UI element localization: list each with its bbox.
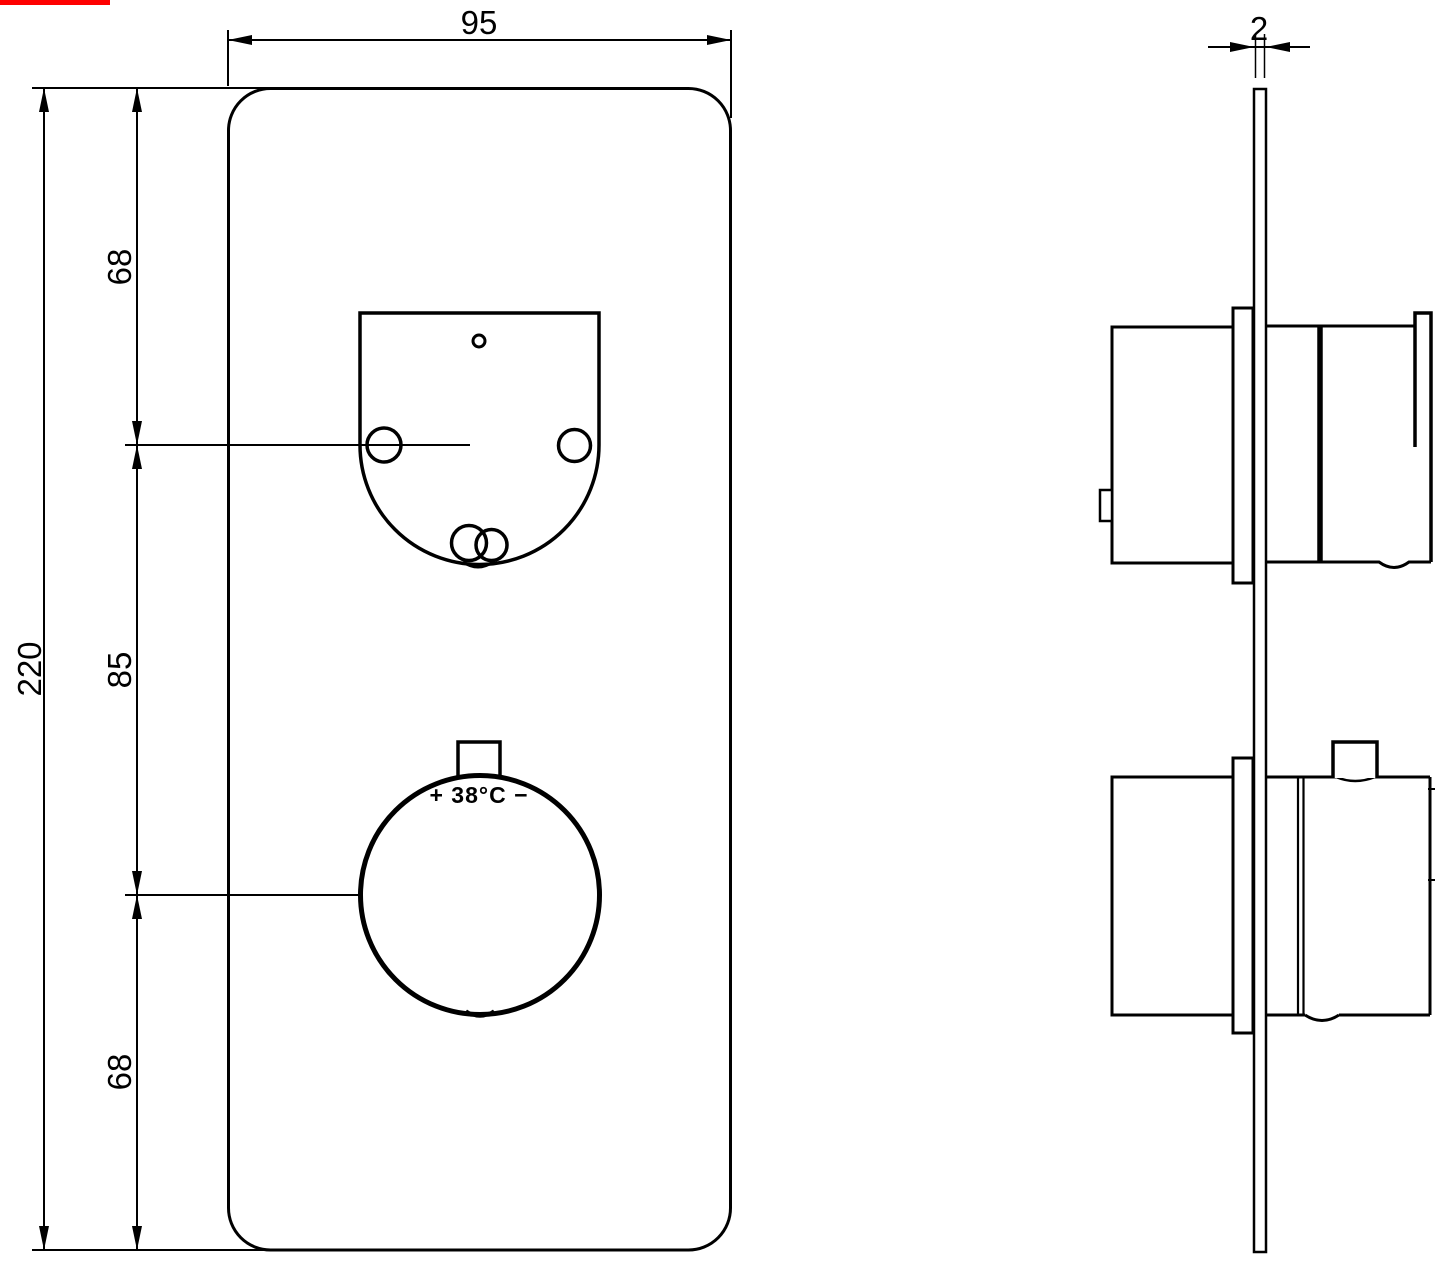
arrowhead bbox=[132, 895, 142, 919]
dim-text-68-bottom: 68 bbox=[101, 1054, 138, 1091]
lower-flange bbox=[1233, 758, 1253, 1033]
temperature-label: + 38°C − bbox=[429, 782, 528, 808]
upper-body-behind-wall bbox=[1112, 327, 1233, 563]
upper-knob-bottom-edge bbox=[1266, 562, 1431, 568]
arrowhead bbox=[132, 421, 142, 445]
knob-outline bbox=[361, 776, 600, 1015]
dim-text-85: 85 bbox=[101, 652, 138, 689]
side-view bbox=[1100, 34, 1435, 1252]
dim-text-68-top: 68 bbox=[101, 249, 138, 286]
dim-text-220: 220 bbox=[11, 641, 48, 696]
upper-body-nub bbox=[1100, 490, 1112, 521]
lower-knob-outline bbox=[1266, 777, 1430, 1015]
red-accent-mark bbox=[0, 0, 110, 5]
technical-drawing: + 38°C − 95 220 68 85 68 bbox=[0, 0, 1445, 1269]
upper-flange bbox=[1233, 308, 1253, 583]
dim-text-95: 95 bbox=[461, 4, 498, 41]
lower-assembly-side bbox=[1112, 742, 1435, 1033]
arrowhead bbox=[132, 445, 142, 469]
upper-knob-face-bar bbox=[1415, 313, 1431, 562]
arrowhead bbox=[132, 871, 142, 895]
plate-front-outline bbox=[229, 89, 731, 1251]
arrowhead bbox=[707, 35, 731, 45]
arrowhead bbox=[132, 88, 142, 112]
lower-body-behind-wall bbox=[1112, 777, 1233, 1015]
arrowhead bbox=[1266, 42, 1290, 52]
arrowhead bbox=[39, 1226, 49, 1250]
dim-text-2: 2 bbox=[1250, 10, 1268, 47]
lower-knob-bottom-arc bbox=[1305, 1015, 1339, 1021]
arrowhead bbox=[228, 35, 252, 45]
arrowhead bbox=[132, 1226, 142, 1250]
arrowhead bbox=[39, 88, 49, 112]
drawing-canvas: + 38°C − 95 220 68 85 68 bbox=[0, 0, 1445, 1269]
plate-side-profile bbox=[1254, 89, 1266, 1252]
lower-knob-button-side bbox=[1333, 742, 1377, 778]
